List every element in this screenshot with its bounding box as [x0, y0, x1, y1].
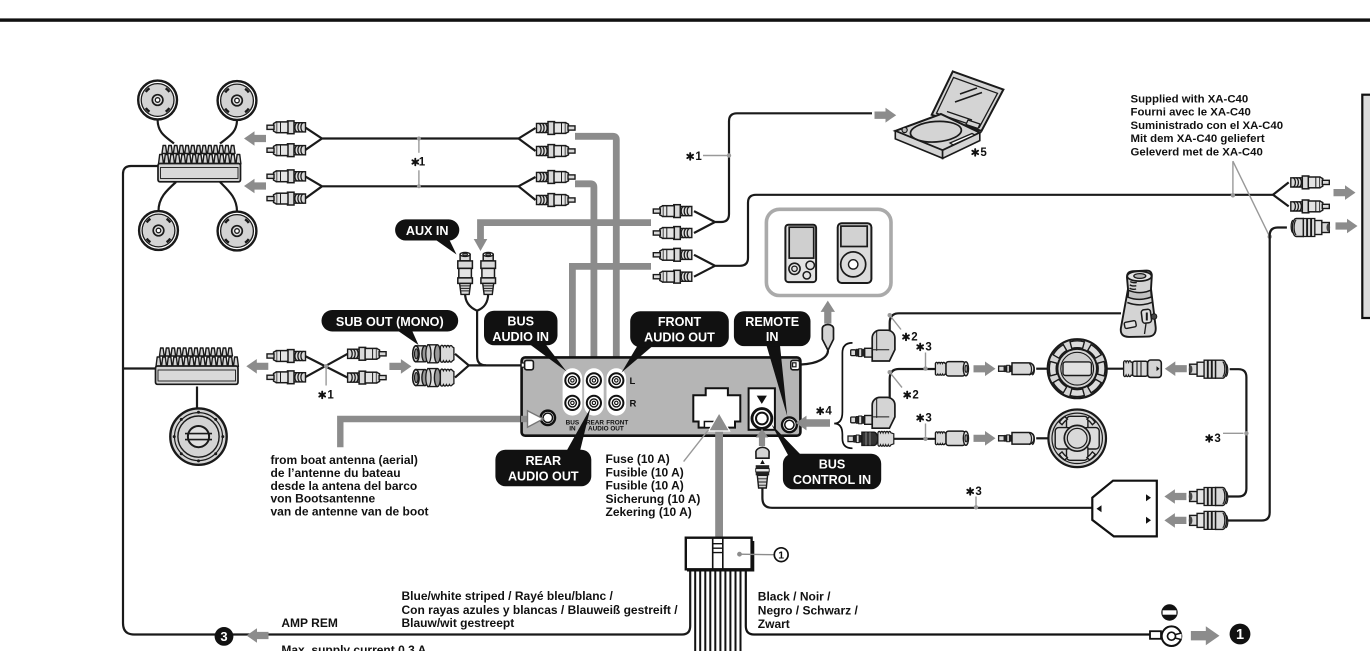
svg-text:AUDIO OUT: AUDIO OUT [508, 469, 579, 483]
svg-text:2: 2 [912, 390, 918, 402]
svg-text:3: 3 [975, 486, 981, 498]
svg-text:Suministrado con el XA-C40: Suministrado con el XA-C40 [1131, 120, 1284, 132]
svg-text:CONTROL IN: CONTROL IN [793, 473, 871, 487]
svg-text:AUDIO IN: AUDIO IN [492, 330, 549, 344]
svg-text:Fusible (10 A): Fusible (10 A) [606, 479, 684, 493]
svg-text:5: 5 [980, 147, 987, 159]
svg-text:Zekering (10 A): Zekering (10 A) [606, 505, 692, 519]
svg-text:van de antenne van de boot: van de antenne van de boot [271, 505, 429, 519]
svg-text:Fuse (10 A): Fuse (10 A) [606, 452, 670, 466]
svg-text:FRONT: FRONT [658, 315, 702, 329]
svg-text:Black / Noir /: Black / Noir / [758, 589, 831, 603]
svg-text:Blue/white striped / Rayé bleu: Blue/white striped / Rayé bleu/blanc / [402, 589, 614, 603]
svg-text:desde la antena del barco: desde la antena del barco [271, 479, 418, 493]
svg-text:4: 4 [825, 406, 832, 418]
svg-text:1: 1 [419, 157, 426, 169]
svg-text:Con rayas azules y blancas / B: Con rayas azules y blancas / Blauweiß ge… [402, 603, 679, 617]
svg-text:SUB OUT (MONO): SUB OUT (MONO) [336, 315, 444, 329]
svg-text:Blauw/wit gestreept: Blauw/wit gestreept [402, 616, 515, 630]
svg-text:Sicherung (10 A): Sicherung (10 A) [606, 492, 701, 506]
svg-text:IN: IN [766, 330, 779, 344]
svg-text:AUDIO OUT: AUDIO OUT [588, 426, 624, 433]
svg-text:AUDIO OUT: AUDIO OUT [644, 331, 715, 345]
svg-text:IN: IN [569, 426, 576, 433]
svg-text:von Bootsantenne: von Bootsantenne [271, 492, 376, 506]
svg-text:Zwart: Zwart [758, 617, 790, 631]
svg-text:Geleverd met de XA-C40: Geleverd met de XA-C40 [1131, 147, 1263, 159]
svg-text:Fourni avec le XA-C40: Fourni avec le XA-C40 [1131, 107, 1251, 119]
svg-text:1: 1 [778, 550, 784, 562]
svg-text:BUS: BUS [819, 458, 846, 472]
svg-text:3: 3 [925, 342, 931, 354]
svg-text:AMP REM: AMP REM [281, 616, 337, 630]
svg-text:1: 1 [327, 390, 334, 402]
svg-text:REMOTE: REMOTE [745, 315, 799, 329]
svg-text:REAR: REAR [525, 454, 561, 468]
svg-text:2: 2 [911, 332, 917, 344]
svg-text:3: 3 [925, 413, 931, 425]
svg-text:from boat antenna (aerial): from boat antenna (aerial) [271, 453, 418, 467]
svg-text:3: 3 [1214, 433, 1220, 445]
svg-text:Fusible (10 A): Fusible (10 A) [606, 465, 684, 479]
svg-text:L: L [630, 376, 636, 387]
svg-text:3: 3 [220, 629, 227, 644]
svg-text:Max. supply current 0.3 A: Max. supply current 0.3 A [281, 643, 426, 651]
svg-text:Negro / Schwarz /: Negro / Schwarz / [758, 603, 859, 617]
svg-text:1: 1 [695, 151, 702, 163]
svg-text:Mit dem XA-C40 geliefert: Mit dem XA-C40 geliefert [1131, 133, 1265, 145]
svg-text:BUS: BUS [507, 315, 534, 329]
svg-text:Supplied with XA-C40: Supplied with XA-C40 [1131, 93, 1249, 105]
svg-text:1: 1 [1236, 627, 1244, 643]
svg-text:de l’antenne du bateau: de l’antenne du bateau [271, 466, 401, 480]
svg-text:R: R [630, 399, 637, 410]
svg-text:AUX IN: AUX IN [406, 224, 449, 238]
